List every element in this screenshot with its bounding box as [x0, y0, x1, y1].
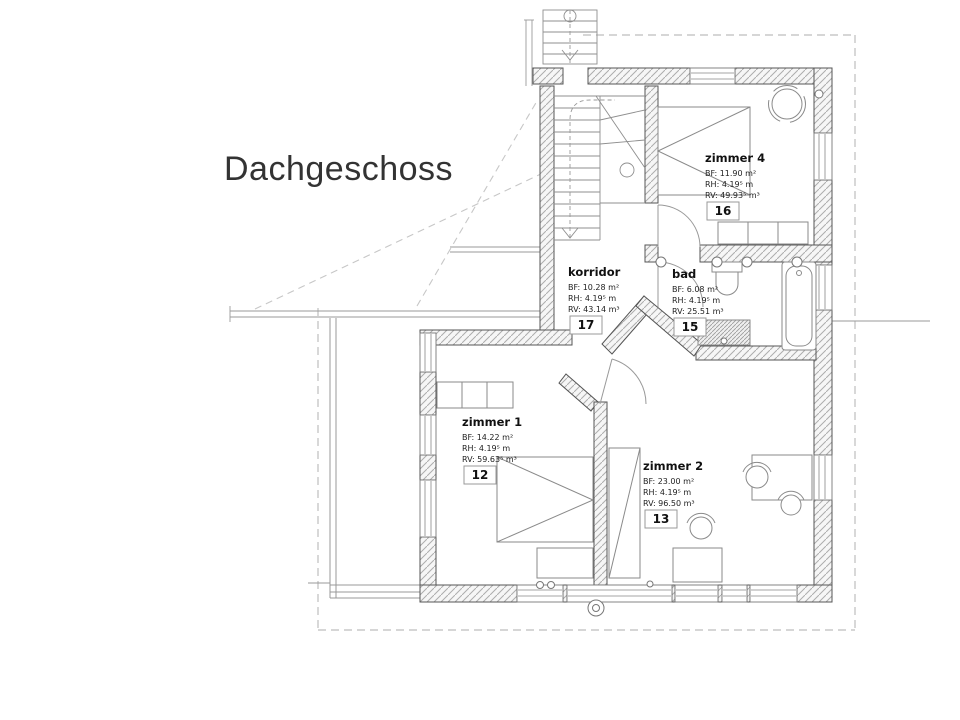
- terrace: [308, 318, 420, 598]
- table-zimmer2: [673, 548, 722, 582]
- door-jamb-angled-wall: [559, 374, 598, 411]
- room-label-zimmer2: zimmer 2 BF: 23.00 m² RH: 4.19⁵ m RV: 96…: [643, 459, 703, 528]
- corner-wall-stub: [645, 245, 658, 262]
- room-volume: RV: 49.93⁵ m³: [705, 191, 760, 200]
- window-top: [690, 68, 735, 84]
- right-wall-1: [814, 68, 832, 133]
- bottom-wall-1: [420, 585, 517, 602]
- staircase: [543, 10, 645, 240]
- zimmer1-top-wall: [420, 330, 572, 345]
- outlet-2: [548, 582, 555, 589]
- floor-plan-page: Dachgeschoss: [0, 0, 960, 720]
- window-left-1: [420, 333, 436, 372]
- room-area: BF: 11.90 m²: [705, 169, 756, 178]
- ceiling-light-5: [815, 90, 823, 98]
- bed-zimmer1: [497, 457, 593, 542]
- bottom-wall-2: [797, 585, 832, 602]
- room-number: 16: [715, 204, 732, 218]
- room-label-korridor: korridor BF: 10.28 m² RH: 4.19⁵ m RV: 43…: [568, 265, 621, 334]
- floor-plan-drawing: zimmer 4 BF: 11.90 m² RH: 4.19⁵ m RV: 49…: [0, 0, 960, 720]
- left-wall-1: [420, 372, 436, 415]
- ceiling-light-4: [792, 257, 802, 267]
- stairwell-left-wall: [540, 86, 554, 332]
- room-area: BF: 23.00 m²: [643, 477, 694, 486]
- wardrobe-zimmer1: [437, 382, 513, 408]
- ceiling-light-3: [742, 257, 752, 267]
- window-bottom-2: [567, 585, 672, 602]
- window-bottom-5: [750, 585, 797, 602]
- right-wall-3: [814, 310, 832, 455]
- outlet-3: [647, 581, 653, 587]
- top-wall-left: [588, 68, 690, 84]
- room-height: RH: 4.19⁵ m: [705, 180, 753, 189]
- window-left-2: [420, 415, 436, 455]
- door-zimmer4: [658, 205, 700, 247]
- room-name: korridor: [568, 265, 621, 279]
- room-volume: RV: 59.63⁵ m³: [462, 455, 517, 464]
- outlet-1: [537, 582, 544, 589]
- bottom-wall-post-3: [718, 585, 722, 602]
- room-name: bad: [672, 267, 696, 281]
- door-zimmer2: [600, 359, 646, 404]
- room-name: zimmer 4: [705, 151, 765, 165]
- left-wall-2: [420, 455, 436, 480]
- chair-zimmer2-c: [778, 491, 804, 515]
- stove-zimmer4: [769, 86, 806, 123]
- room-volume: RV: 25.51 m³: [672, 307, 724, 316]
- stair-lower-run: [554, 96, 645, 240]
- stair-post: [620, 163, 634, 177]
- closet-zimmer2: [609, 448, 640, 578]
- stair-zimmer4-wall: [645, 86, 658, 203]
- drain-symbol: [588, 600, 604, 616]
- room-area: BF: 6.08 m²: [672, 285, 718, 294]
- shelf-zimmer4: [718, 222, 808, 244]
- room-height: RH: 4.19⁵ m: [568, 294, 616, 303]
- room-name: zimmer 1: [462, 415, 522, 429]
- window-left-3: [420, 480, 436, 537]
- top-wall-stub: [533, 68, 563, 84]
- room-number: 17: [578, 318, 595, 332]
- room-area: BF: 10.28 m²: [568, 283, 619, 292]
- ceiling-light-1: [656, 257, 666, 267]
- window-bottom-3: [675, 585, 718, 602]
- room-area: BF: 14.22 m²: [462, 433, 513, 442]
- window-right-zimmer4: [814, 133, 832, 180]
- ceiling-light-2: [712, 257, 722, 267]
- dresser-zimmer1: [537, 548, 593, 578]
- room-label-zimmer4: zimmer 4 BF: 11.90 m² RH: 4.19⁵ m RV: 49…: [705, 151, 765, 220]
- room-height: RH: 4.19⁵ m: [672, 296, 720, 305]
- window-right-zimmer2: [814, 455, 832, 500]
- roof-hip-line-2: [417, 101, 537, 306]
- room-name: zimmer 2: [643, 459, 703, 473]
- room-number: 13: [653, 512, 670, 526]
- bottom-wall-post-4: [747, 585, 750, 602]
- room-height: RH: 4.19⁵ m: [643, 488, 691, 497]
- window-right-bad: [814, 265, 832, 310]
- room-volume: RV: 96.50 m³: [643, 499, 695, 508]
- chair-zimmer2-a: [687, 513, 715, 539]
- stair-upper-run: [543, 10, 597, 64]
- room-volume: RV: 43.14 m³: [568, 305, 620, 314]
- window-bottom-4: [722, 585, 747, 602]
- room-number: 12: [472, 468, 489, 482]
- roof-hip-line-1: [255, 173, 543, 309]
- bottom-wall-post-2: [672, 585, 675, 602]
- zimmer1-zimmer2-wall: [594, 402, 607, 585]
- room-number: 15: [682, 320, 699, 334]
- bathtub: [782, 262, 816, 350]
- bottom-wall-post-1: [563, 585, 567, 602]
- room-height: RH: 4.19⁵ m: [462, 444, 510, 453]
